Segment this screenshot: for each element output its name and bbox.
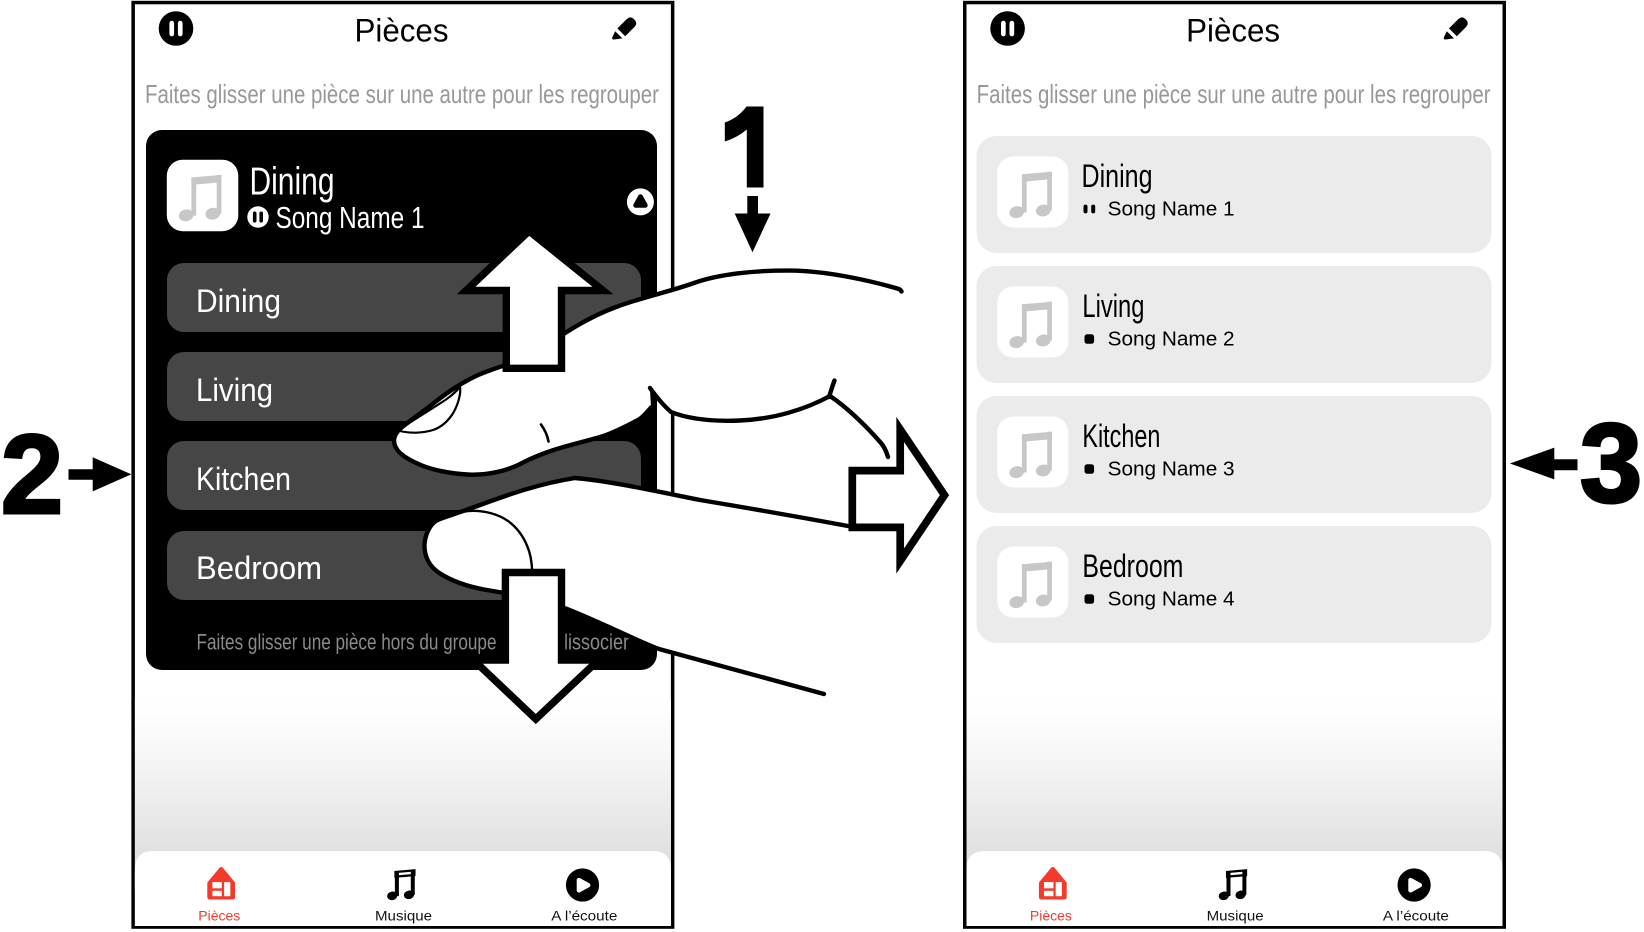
- svg-text:Bedroom: Bedroom: [1082, 548, 1183, 584]
- svg-text:Dining: Dining: [1082, 158, 1153, 194]
- svg-text:Dining: Dining: [250, 161, 335, 204]
- svg-text:Song Name 3: Song Name 3: [1108, 458, 1235, 481]
- svg-text:Song Name 4: Song Name 4: [1108, 588, 1235, 611]
- svg-text:Bedroom: Bedroom: [196, 550, 322, 586]
- svg-text:Living: Living: [196, 372, 273, 408]
- svg-text:Song Name 1: Song Name 1: [276, 200, 425, 235]
- svg-text:Kitchen: Kitchen: [196, 461, 291, 497]
- svg-text:Dining: Dining: [196, 283, 281, 319]
- svg-text:Living: Living: [1082, 288, 1144, 324]
- svg-text:Song Name 2: Song Name 2: [1108, 328, 1235, 351]
- svg-text:Faites glisser une pièce hors: Faites glisser une pièce hors du groupe: [197, 629, 497, 654]
- svg-text:Kitchen: Kitchen: [1082, 418, 1160, 454]
- svg-text:3: 3: [1580, 401, 1642, 526]
- svg-text:Song Name 1: Song Name 1: [1108, 198, 1235, 221]
- svg-text:2: 2: [1, 412, 63, 537]
